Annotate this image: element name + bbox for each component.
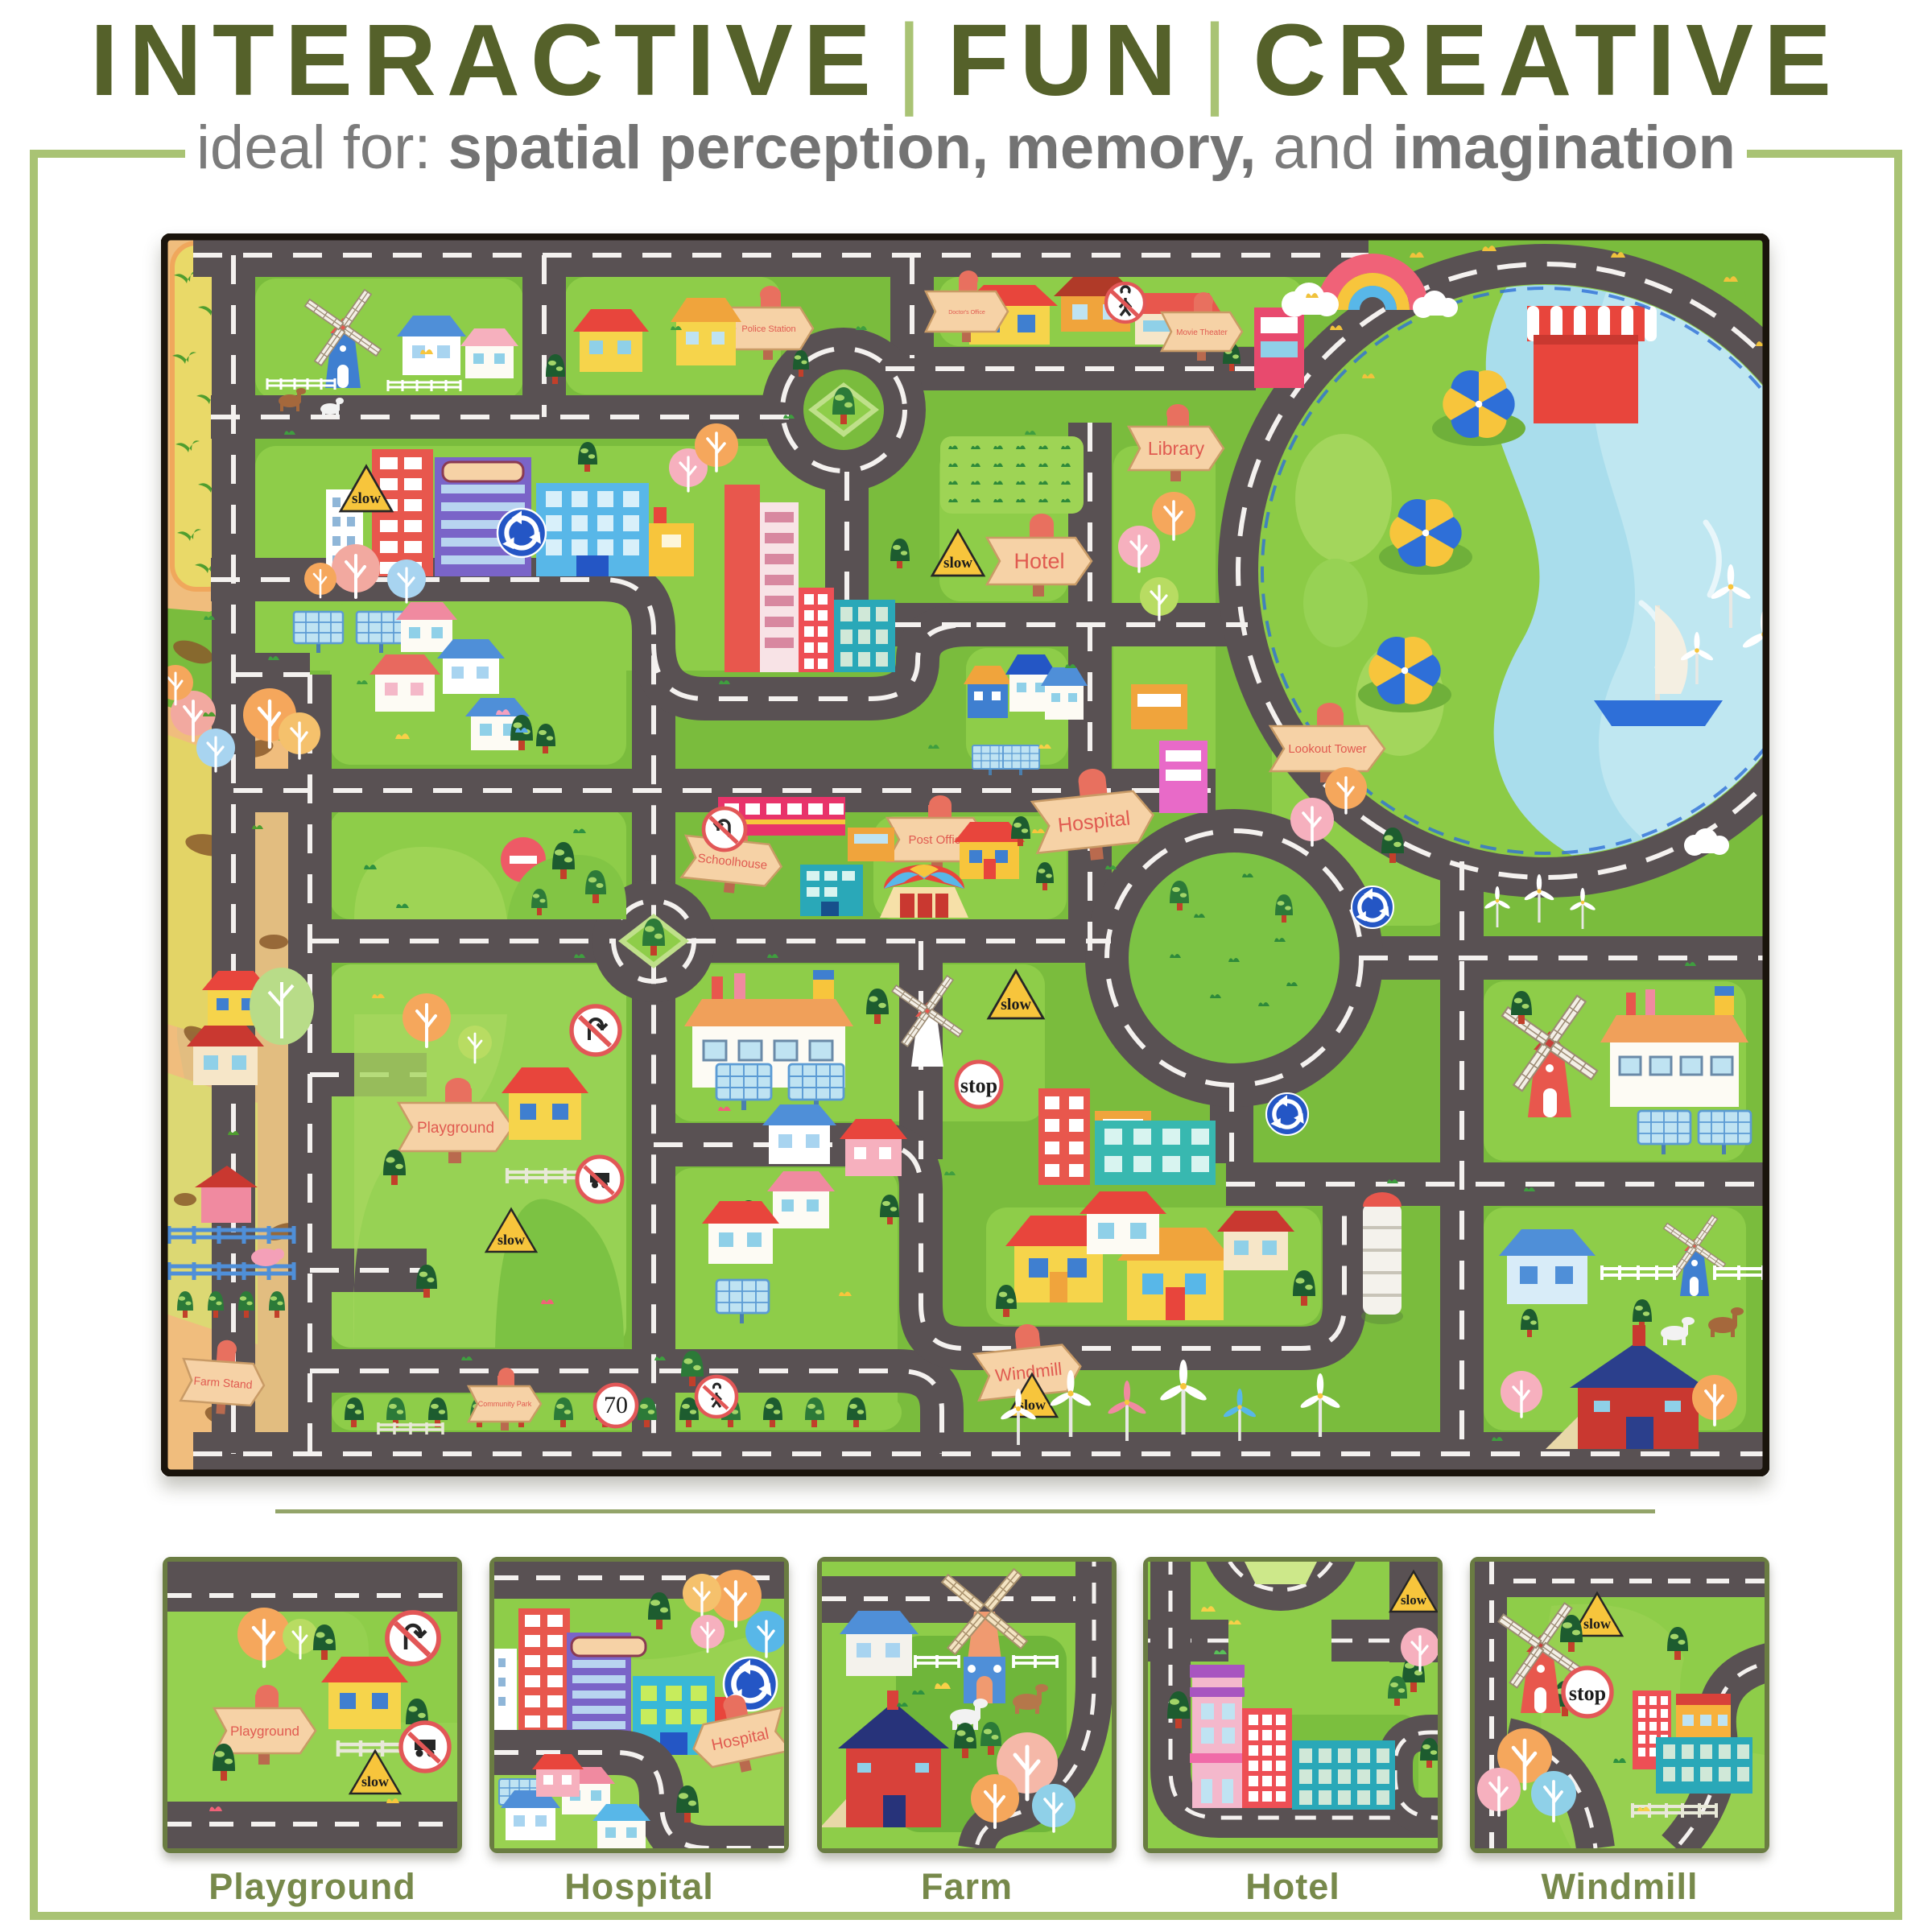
svg-text:Playground: Playground — [417, 1120, 494, 1137]
svg-text:Lookout Tower: Lookout Tower — [1288, 742, 1366, 756]
svg-text:slow: slow — [1401, 1592, 1427, 1608]
svg-text:Movie Theater: Movie Theater — [1176, 328, 1228, 337]
svg-text:Playground: Playground — [230, 1724, 299, 1739]
svg-text:Police Station: Police Station — [741, 324, 795, 334]
svg-text:stop: stop — [1569, 1682, 1606, 1705]
svg-text:slow: slow — [352, 490, 381, 507]
svg-text:Hotel: Hotel — [1013, 549, 1064, 573]
svg-text:slow: slow — [1001, 996, 1031, 1013]
svg-text:slow: slow — [497, 1232, 525, 1248]
svg-text:slow: slow — [1583, 1616, 1611, 1632]
svg-text:Library: Library — [1148, 438, 1205, 459]
svg-text:70: 70 — [604, 1392, 628, 1418]
svg-text:slow: slow — [361, 1773, 389, 1790]
svg-text:stop: stop — [960, 1074, 997, 1097]
svg-text:slow: slow — [943, 555, 972, 572]
svg-text:Community Park: Community Park — [478, 1400, 532, 1408]
svg-text:Doctor's Office: Doctor's Office — [948, 310, 985, 316]
